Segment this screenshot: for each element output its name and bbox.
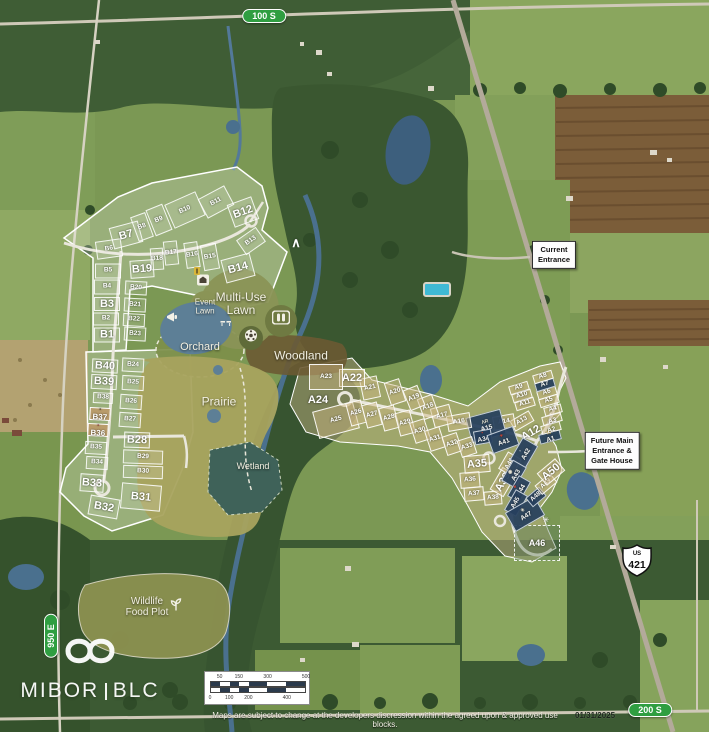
svg-text:US: US [633,551,641,557]
logo-text-right: BLC [113,679,160,703]
mibor-blc-logo: MIBOR BLC [18,628,162,703]
megaphone-icon [166,309,178,327]
pickleball-court-icon [272,311,290,330]
mountain-icon: ∧ [291,235,301,251]
logo-divider [105,683,107,700]
scale-bar: 50150300500 0100200400 [204,671,310,705]
map-date: 01/31/2025 [575,711,615,720]
h-marker-icon [194,262,200,280]
scale-label: 100 [225,695,233,701]
callout-line: Current [538,245,570,255]
scale-label: 50 [217,674,223,680]
sprout-icon [170,598,182,617]
plat-map: B1B2B3B4B5B6B7B8B9B10B11B12B13B14B15B16B… [0,0,709,732]
scale-label: 200 [244,695,252,701]
callout-line: Entrance & [591,446,634,456]
picnic-icon [221,313,232,331]
compass-icon: ✳ [543,516,550,525]
callout-line: Entrance [538,255,570,265]
scale-bar-band [210,687,306,693]
road-label-100s: 100 S [242,9,286,23]
map-disclaimer: Maps are subject to change at the develo… [200,711,570,729]
scale-label: 300 [263,674,271,680]
scale-label: 0 [209,695,212,701]
infinity-icon [40,628,140,674]
callout-line: Gate House [591,456,634,466]
scale-label: 150 [235,674,243,680]
logo-text-left: MIBOR [20,679,99,703]
callout-line: Future Main [591,436,634,446]
svg-text:421: 421 [628,559,646,571]
us-421-shield: US 421 [620,543,654,578]
logo-text: MIBOR BLC [18,679,162,703]
icons-layer: ∧ ✳ [0,0,709,732]
callout-future-entrance: Future Main Entrance & Gate House [585,432,640,470]
callout-current-entrance: Current Entrance [532,241,576,269]
scale-label: 500 [302,674,310,680]
soccer-ball-icon [244,329,258,348]
scale-label: 400 [283,695,291,701]
road-label-200s: 200 S [628,703,672,717]
